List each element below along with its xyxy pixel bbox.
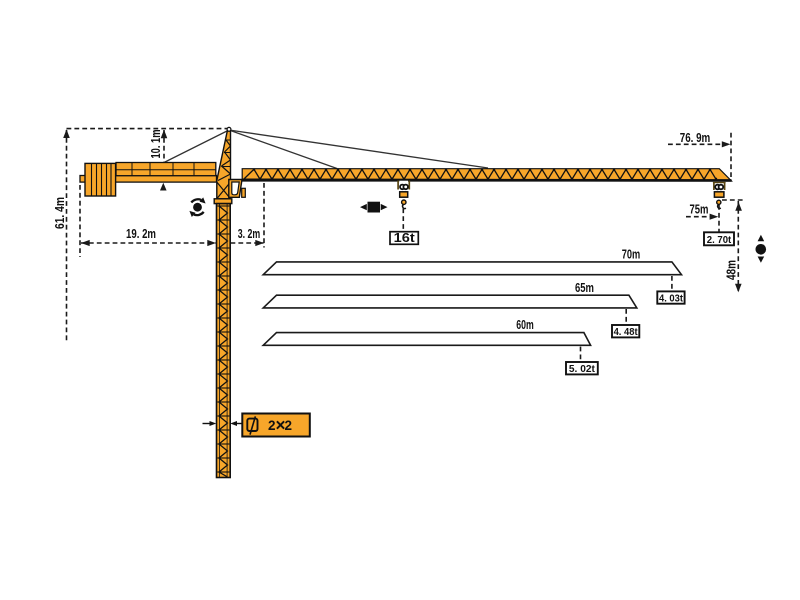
svg-text:65m: 65m — [575, 280, 594, 295]
svg-text:2. 70t: 2. 70t — [707, 234, 732, 246]
svg-text:70m: 70m — [622, 247, 641, 262]
svg-text:75m: 75m — [690, 202, 709, 217]
svg-text:61. 4m: 61. 4m — [52, 197, 67, 229]
svg-text:16t: 16t — [394, 231, 416, 245]
svg-text:10. 1m: 10. 1m — [148, 130, 163, 159]
svg-text:76. 9m: 76. 9m — [680, 130, 711, 145]
svg-text:4. 48t: 4. 48t — [614, 326, 638, 338]
svg-text:19. 2m: 19. 2m — [126, 226, 156, 241]
svg-text:48m: 48m — [723, 260, 738, 280]
svg-text:60m: 60m — [516, 317, 534, 332]
svg-text:2: 2 — [285, 418, 293, 433]
svg-text:5. 02t: 5. 02t — [569, 363, 595, 375]
svg-text:2: 2 — [268, 418, 276, 433]
svg-text:4. 03t: 4. 03t — [659, 293, 683, 305]
svg-text:3. 2m: 3. 2m — [238, 226, 261, 241]
